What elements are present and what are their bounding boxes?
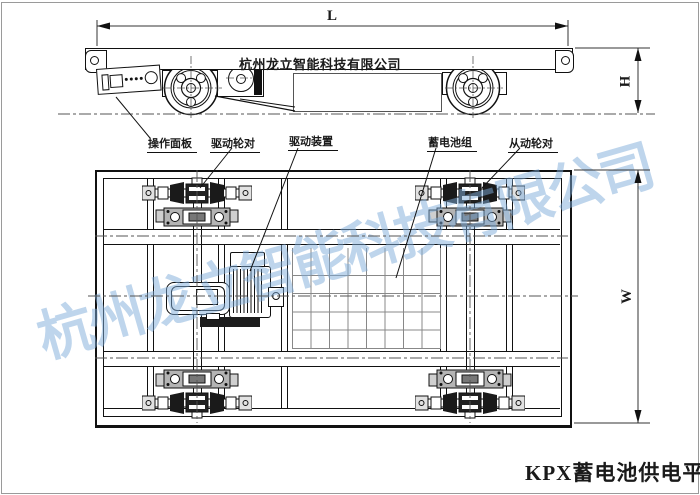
motor-junction-port	[272, 292, 280, 300]
panel-display	[109, 74, 123, 88]
drawing-title: KPX蓄电池供电平车	[525, 457, 700, 487]
endcap-left-bolt	[90, 56, 99, 65]
endcap-right-bolt	[561, 56, 570, 65]
side-battery-box	[293, 73, 442, 112]
driven-axle-shaft	[466, 196, 467, 399]
frame-stringer	[287, 179, 288, 408]
frame-stringer	[147, 179, 148, 408]
panel-knob	[144, 71, 158, 85]
deck-company-text: 杭州龙立智能科技有限公司	[239, 54, 409, 73]
panel-button	[140, 77, 143, 80]
frame-stringer	[506, 179, 507, 408]
frame-stringer	[446, 179, 447, 408]
engineering-drawing-canvas: 杭州龙立智能科技有限公司 操作面板 驱动轮对	[0, 0, 700, 495]
battery-grid-rows	[292, 275, 441, 349]
label-drive-wheelset: 驱动轮对	[210, 135, 260, 153]
operation-panel	[96, 65, 162, 95]
gearbox-port	[196, 289, 218, 305]
frame-stringer	[512, 179, 513, 408]
driven-axle-shaft	[474, 196, 475, 399]
panel-button	[130, 77, 133, 80]
side-drive-dark-bar	[254, 70, 262, 95]
right-bogie-frame	[442, 72, 507, 95]
label-operation-panel: 操作面板	[147, 135, 197, 153]
drive-base-foot	[206, 313, 220, 320]
cross-beam-upper	[104, 229, 560, 245]
panel-slot	[101, 74, 109, 90]
panel-button	[125, 78, 128, 81]
cross-beam-lower	[104, 351, 560, 367]
frame-stringer	[153, 179, 154, 408]
dim-label-width: W	[619, 289, 636, 304]
label-driven-wheelset: 从动轮对	[508, 135, 558, 153]
dim-label-length: L	[327, 8, 337, 25]
motor-cooling-fins	[233, 269, 264, 313]
end-beam-line	[104, 408, 560, 409]
panel-button	[135, 77, 138, 80]
left-bogie-frame	[162, 70, 225, 97]
label-drive-unit: 驱动装置	[288, 133, 338, 151]
side-motor-hub	[236, 74, 246, 84]
dim-label-height: H	[617, 76, 634, 88]
label-battery-pack: 蓄电池组	[427, 134, 477, 152]
